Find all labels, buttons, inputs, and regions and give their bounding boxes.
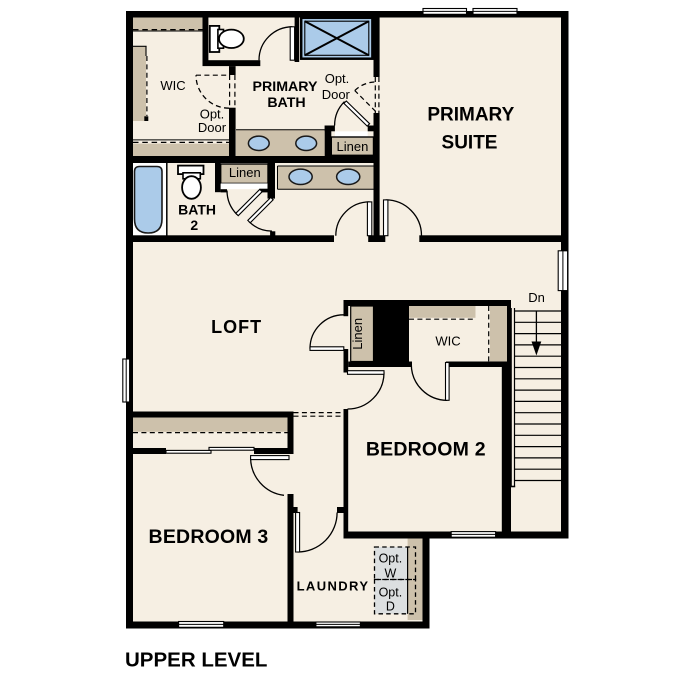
svg-text:W: W [384,567,396,581]
svg-text:BEDROOM 3: BEDROOM 3 [149,526,269,548]
svg-text:UPPER LEVEL: UPPER LEVEL [125,649,267,672]
svg-text:Door: Door [322,87,351,102]
svg-text:BEDROOM 2: BEDROOM 2 [366,439,486,461]
svg-text:Opt.: Opt. [379,552,403,566]
svg-text:Linen: Linen [336,139,368,154]
svg-text:SUITE: SUITE [442,132,498,153]
svg-text:LOFT: LOFT [211,317,262,337]
svg-text:Linen: Linen [229,165,261,180]
svg-text:WIC: WIC [160,78,185,93]
svg-text:WIC: WIC [435,334,460,349]
svg-text:Door: Door [198,120,227,135]
svg-text:2: 2 [190,217,198,233]
svg-text:PRIMARY: PRIMARY [253,79,318,95]
svg-text:LAUNDRY: LAUNDRY [297,579,370,594]
svg-text:Dn: Dn [528,290,545,305]
svg-text:Opt.: Opt. [379,586,403,600]
svg-text:BATH: BATH [178,202,216,218]
svg-text:Linen: Linen [350,318,365,350]
svg-text:Opt.: Opt. [325,71,350,86]
svg-text:PRIMARY: PRIMARY [427,105,514,126]
svg-text:D: D [386,600,395,614]
svg-text:BATH: BATH [267,95,305,111]
